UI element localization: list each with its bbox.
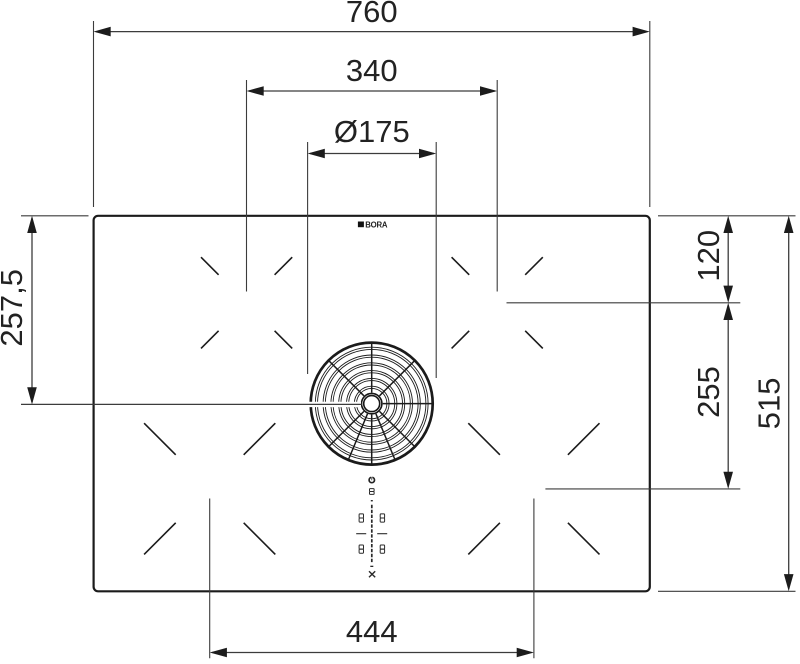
svg-text:760: 760 [346, 0, 398, 29]
svg-text:340: 340 [346, 53, 398, 88]
svg-text:Ø175: Ø175 [334, 114, 410, 149]
svg-text:257,5: 257,5 [0, 269, 29, 347]
svg-text:BORA: BORA [365, 220, 388, 229]
svg-text:255: 255 [691, 366, 726, 418]
svg-text:515: 515 [752, 378, 787, 430]
svg-text:120: 120 [691, 230, 726, 282]
svg-text:444: 444 [346, 614, 398, 649]
